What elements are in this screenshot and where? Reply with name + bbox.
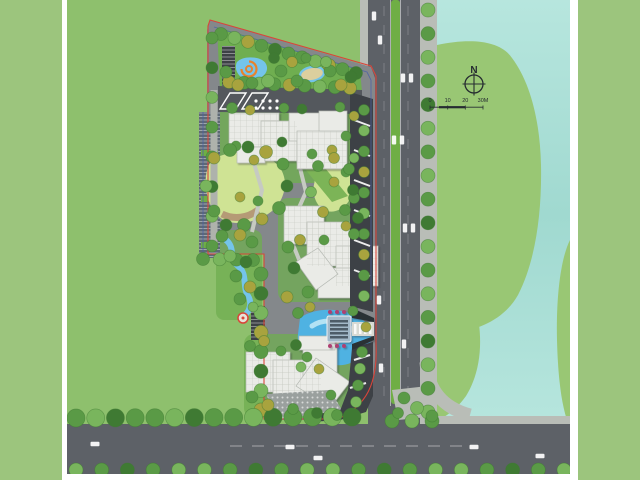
tree (288, 404, 299, 415)
tree (344, 164, 355, 175)
tree (206, 62, 218, 74)
left-border-panel (0, 0, 62, 480)
tree (234, 293, 246, 305)
tree (421, 358, 435, 372)
tree (329, 177, 339, 187)
tree (297, 104, 307, 114)
tree (255, 39, 268, 52)
tree (357, 347, 368, 358)
tree (216, 230, 228, 242)
tree (302, 352, 312, 362)
tree (421, 3, 435, 17)
tree (259, 336, 270, 347)
tree (197, 463, 211, 477)
tree (291, 75, 303, 87)
car (91, 442, 100, 446)
tree (208, 205, 220, 217)
tree (353, 380, 364, 391)
tree (224, 250, 236, 262)
car (377, 296, 381, 305)
tree (313, 161, 324, 172)
tree (326, 390, 336, 400)
tree (421, 50, 435, 64)
car (402, 340, 406, 349)
median-strip (391, 0, 400, 404)
tree (206, 240, 218, 252)
car (470, 445, 479, 449)
tree (421, 121, 435, 135)
tree (269, 53, 280, 64)
car (409, 74, 413, 83)
tree (295, 235, 306, 246)
tree (185, 409, 203, 427)
tree (421, 381, 435, 395)
tree (287, 57, 298, 68)
tree (359, 229, 370, 240)
tree (480, 463, 494, 477)
tree (220, 66, 232, 78)
tree (301, 53, 311, 63)
scale-label-30: 30M (478, 98, 489, 104)
road-surface (67, 424, 570, 474)
tree (276, 346, 286, 356)
tree (361, 322, 371, 332)
tree (228, 31, 241, 44)
tree (300, 463, 314, 477)
plan-content: N 0 10 20 30M (67, 0, 571, 477)
tree (319, 235, 329, 245)
tree (359, 167, 370, 178)
master-plan-svg: N 0 10 20 30M (0, 0, 640, 480)
tree (341, 131, 351, 141)
tree (421, 216, 435, 230)
tree (405, 414, 419, 428)
tree (421, 169, 435, 183)
tree (254, 267, 268, 281)
tree (403, 463, 417, 477)
tree (245, 105, 255, 115)
car (392, 136, 396, 145)
tree (329, 153, 340, 164)
median-edge-line (390, 0, 391, 406)
west-sidewalk (360, 0, 368, 70)
tree (248, 302, 258, 312)
tree (206, 32, 218, 44)
tree (242, 35, 255, 48)
car (411, 224, 415, 233)
tree (345, 71, 357, 83)
tree (279, 103, 289, 113)
horizontal-road (67, 416, 570, 474)
tree (314, 364, 324, 374)
tree (348, 306, 358, 316)
tree (262, 399, 274, 411)
tree (106, 409, 124, 427)
tree (69, 463, 83, 477)
tree (273, 202, 286, 215)
tree (205, 409, 223, 427)
tree (223, 463, 237, 477)
tree (355, 363, 366, 374)
tree (421, 263, 435, 277)
tree (206, 91, 218, 103)
tree (335, 102, 345, 112)
median-edge-line (400, 0, 401, 406)
tree (421, 192, 435, 206)
tree (240, 256, 252, 268)
tree (305, 302, 315, 312)
tree (172, 463, 186, 477)
tree (326, 463, 340, 477)
tree (454, 463, 468, 477)
tree (318, 207, 329, 218)
tree (246, 236, 258, 248)
tree (274, 463, 288, 477)
tree (282, 241, 294, 253)
car (403, 224, 407, 233)
tree (393, 408, 404, 419)
tree (411, 402, 424, 415)
tree (277, 158, 289, 170)
car (379, 364, 383, 373)
tree (249, 155, 259, 165)
tree (359, 105, 370, 116)
tree (377, 463, 391, 477)
scale-label-0: 0 (428, 98, 431, 104)
tree (275, 65, 287, 77)
tree (557, 463, 571, 477)
tree (421, 287, 435, 301)
tree (359, 291, 370, 302)
tree (281, 291, 293, 303)
tree (225, 408, 243, 426)
tree (306, 187, 317, 198)
tree (359, 125, 370, 136)
tree (352, 463, 366, 477)
car (286, 445, 295, 449)
tree (253, 196, 263, 206)
tree (321, 57, 332, 68)
tree (353, 213, 364, 224)
site-plan-rendering: N 0 10 20 30M (0, 0, 640, 480)
tree (421, 27, 435, 41)
tree (234, 229, 246, 241)
tree (426, 410, 438, 422)
scale-segment (439, 106, 448, 108)
tree (281, 180, 293, 192)
tree (200, 180, 212, 192)
tree (349, 229, 360, 240)
tree (244, 408, 262, 426)
tree (313, 80, 326, 93)
tree (254, 364, 268, 378)
tree (312, 408, 323, 419)
scale-segment (448, 106, 466, 108)
tree (349, 111, 359, 121)
tree (421, 239, 435, 253)
tree (146, 409, 164, 427)
tree (288, 262, 300, 274)
scale-label-20: 20 (462, 98, 468, 104)
tree (348, 185, 359, 196)
tree (245, 341, 256, 352)
car (401, 74, 405, 83)
tree (293, 308, 304, 319)
tree (398, 392, 410, 404)
tree (87, 409, 105, 427)
tree (146, 463, 160, 477)
tree (349, 153, 359, 163)
car (378, 36, 382, 45)
tree (359, 146, 370, 157)
tree (262, 75, 275, 88)
tree (126, 409, 144, 427)
tree (197, 253, 210, 266)
scale-label-10: 10 (445, 98, 451, 104)
tree (220, 219, 232, 231)
car (536, 454, 545, 458)
tree (531, 463, 545, 477)
tree (235, 192, 245, 202)
tree (246, 77, 258, 89)
tree (359, 270, 370, 281)
tree (340, 205, 351, 216)
tree (506, 463, 520, 477)
tree (67, 409, 85, 427)
tree (256, 213, 268, 225)
tree (242, 141, 254, 153)
tree (260, 146, 273, 159)
tree (291, 340, 302, 351)
car (314, 456, 323, 460)
tree (254, 345, 268, 359)
tree (421, 334, 435, 348)
tree (429, 463, 443, 477)
tree (341, 221, 351, 231)
tree (421, 310, 435, 324)
tree (296, 362, 306, 372)
tree (249, 463, 263, 477)
tree (246, 391, 258, 403)
tree (359, 249, 370, 260)
tree (359, 187, 370, 198)
tree (351, 397, 362, 408)
tree (302, 286, 314, 298)
tree (244, 281, 256, 293)
tree (332, 410, 343, 421)
tree (208, 152, 220, 164)
car (400, 136, 404, 145)
tree (206, 121, 218, 133)
tree (307, 149, 317, 159)
tree (230, 270, 242, 282)
tree (421, 74, 435, 88)
right-border-panel (578, 0, 640, 480)
tree (232, 79, 244, 91)
play-feature-center (242, 317, 245, 320)
tree (343, 408, 361, 426)
tree (227, 103, 238, 114)
car (372, 12, 376, 21)
tree (277, 137, 287, 147)
tree (120, 463, 134, 477)
tree (224, 144, 237, 157)
tree (421, 145, 435, 159)
tree (335, 79, 347, 91)
tree (95, 463, 109, 477)
tree (166, 409, 184, 427)
